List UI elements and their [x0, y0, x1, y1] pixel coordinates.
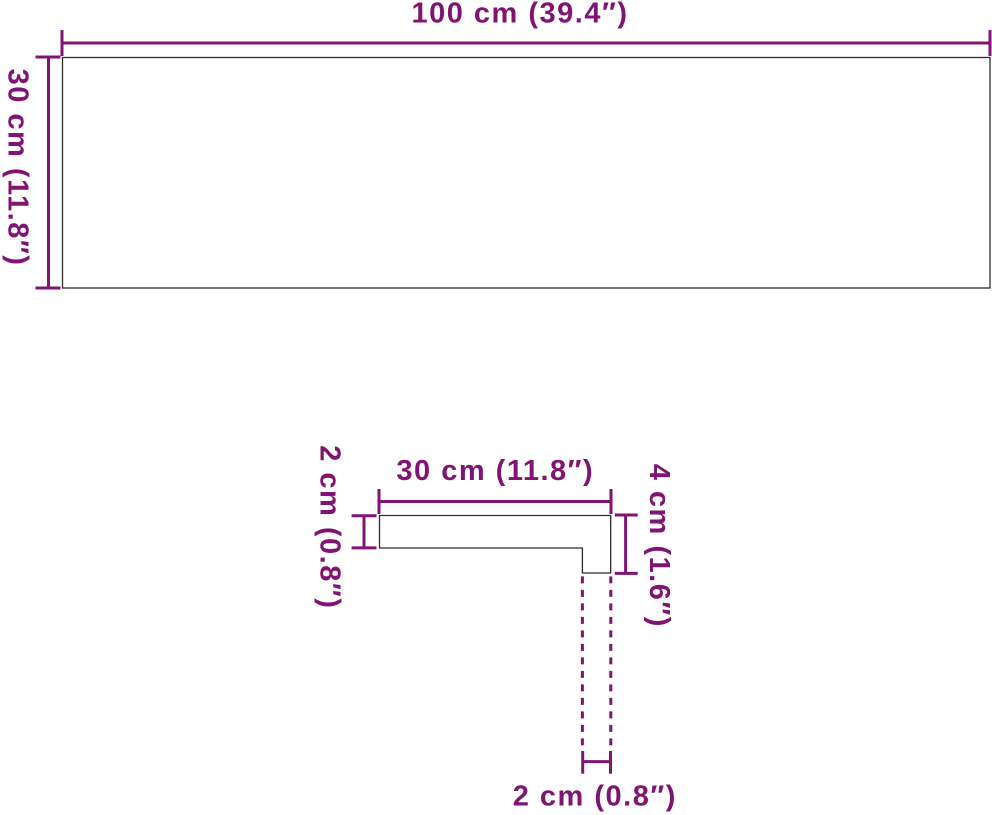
svg-text:2 cm (0.8″): 2 cm (0.8″) [313, 445, 345, 609]
svg-text:30 cm (11.8″): 30 cm (11.8″) [396, 455, 594, 487]
svg-text:2 cm (0.8″): 2 cm (0.8″) [513, 781, 677, 813]
svg-text:30 cm (11.8″): 30 cm (11.8″) [2, 69, 34, 267]
svg-text:4 cm (1.6″): 4 cm (1.6″) [643, 464, 675, 628]
svg-text:100 cm (39.4″): 100 cm (39.4″) [411, 0, 628, 30]
